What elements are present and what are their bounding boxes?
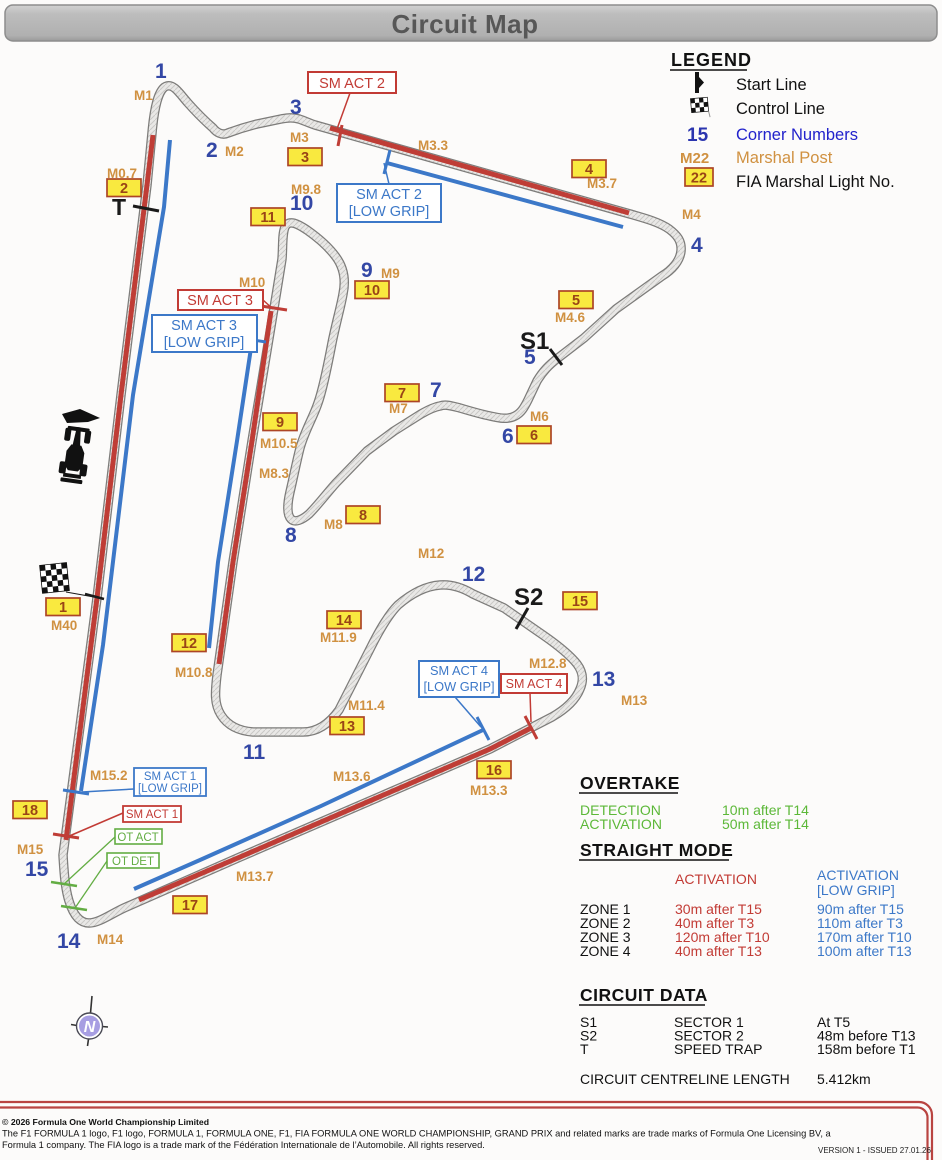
svg-text:2: 2 (206, 139, 218, 162)
svg-text:12: 12 (462, 563, 485, 586)
svg-text:7: 7 (430, 379, 442, 402)
svg-text:6: 6 (530, 428, 538, 444)
svg-text:M10: M10 (239, 275, 265, 290)
svg-text:14: 14 (57, 930, 81, 953)
svg-text:M13.7: M13.7 (236, 869, 274, 884)
svg-text:© 2026 Formula One World Champ: © 2026 Formula One World Championship Li… (2, 1117, 209, 1127)
svg-text:ACTIVATION: ACTIVATION (817, 867, 899, 883)
svg-text:VERSION 1 - ISSUED 27.01.26: VERSION 1 - ISSUED 27.01.26 (818, 1146, 931, 1155)
svg-text:M10.8: M10.8 (175, 665, 213, 680)
svg-text:STRAIGHT MODE: STRAIGHT MODE (580, 840, 733, 860)
svg-text:Control Line: Control Line (736, 100, 825, 118)
svg-text:M6: M6 (530, 409, 549, 424)
svg-text:16: 16 (486, 763, 502, 779)
svg-text:5.412km: 5.412km (817, 1071, 871, 1087)
svg-text:ZONE 4: ZONE 4 (580, 943, 631, 959)
svg-text:22: 22 (691, 171, 707, 187)
svg-text:M14: M14 (97, 932, 124, 947)
svg-text:14: 14 (336, 613, 352, 629)
svg-text:M2: M2 (225, 144, 244, 159)
svg-text:Start Line: Start Line (736, 76, 807, 94)
svg-text:[LOW GRIP]: [LOW GRIP] (138, 783, 202, 795)
svg-text:50m after T14: 50m after T14 (722, 816, 809, 832)
svg-text:M10.5: M10.5 (260, 436, 298, 451)
svg-text:M22: M22 (680, 150, 709, 167)
svg-text:S2: S2 (514, 584, 543, 611)
svg-text:Marshal Post: Marshal Post (736, 149, 833, 167)
svg-text:ACTIVATION: ACTIVATION (675, 871, 757, 887)
svg-text:M4.6: M4.6 (555, 310, 586, 325)
svg-text:SM ACT 4: SM ACT 4 (430, 663, 488, 678)
svg-text:M9: M9 (381, 266, 400, 281)
svg-text:[LOW GRIP]: [LOW GRIP] (164, 335, 245, 351)
svg-text:13: 13 (339, 719, 355, 735)
svg-text:5: 5 (524, 346, 536, 369)
svg-text:12: 12 (181, 636, 197, 652)
svg-text:15: 15 (572, 594, 588, 610)
svg-text:M15: M15 (17, 842, 44, 857)
svg-text:SM ACT 4: SM ACT 4 (506, 677, 563, 691)
svg-text:M11.9: M11.9 (320, 630, 357, 645)
svg-text:ACTIVATION: ACTIVATION (580, 816, 662, 832)
svg-text:8: 8 (285, 524, 297, 547)
svg-text:15: 15 (687, 125, 709, 146)
svg-text:M13.3: M13.3 (470, 783, 508, 798)
svg-text:T: T (112, 194, 126, 220)
svg-text:9: 9 (276, 415, 284, 431)
svg-text:OT DET: OT DET (112, 856, 154, 868)
svg-text:M3: M3 (290, 130, 309, 145)
svg-text:3: 3 (301, 150, 309, 166)
svg-text:M7: M7 (389, 401, 408, 416)
svg-text:1: 1 (155, 60, 167, 83)
svg-text:SM ACT 1: SM ACT 1 (144, 771, 196, 783)
svg-text:7: 7 (398, 386, 406, 402)
svg-text:FIA Marshal Light No.: FIA Marshal Light No. (736, 173, 895, 191)
svg-text:M40: M40 (51, 618, 77, 633)
svg-text:SPEED TRAP: SPEED TRAP (674, 1041, 762, 1057)
svg-text:4: 4 (691, 234, 703, 257)
svg-text:18: 18 (22, 803, 38, 819)
svg-text:100m after T13: 100m after T13 (817, 943, 912, 959)
svg-text:M8: M8 (324, 517, 343, 532)
svg-text:CIRCUIT DATA: CIRCUIT DATA (580, 985, 708, 1005)
svg-text:15: 15 (25, 858, 49, 881)
svg-text:M8.3: M8.3 (259, 466, 290, 481)
svg-text:M12.8: M12.8 (529, 656, 567, 671)
svg-text:4: 4 (585, 162, 593, 178)
svg-text:[LOW GRIP]: [LOW GRIP] (349, 204, 430, 220)
svg-text:6: 6 (502, 425, 514, 448)
svg-text:158m before T1: 158m before T1 (817, 1041, 916, 1057)
svg-text:10: 10 (364, 283, 380, 299)
svg-text:OVERTAKE: OVERTAKE (580, 773, 680, 793)
svg-text:M12: M12 (418, 546, 444, 561)
svg-text:8: 8 (359, 508, 367, 524)
svg-text:2: 2 (120, 181, 128, 197)
svg-text:[LOW GRIP]: [LOW GRIP] (817, 882, 895, 898)
svg-text:Formula 1 company. The FIA log: Formula 1 company. The FIA logo is a tra… (2, 1140, 485, 1150)
svg-text:M1: M1 (134, 88, 153, 103)
svg-text:SM ACT 2: SM ACT 2 (319, 76, 385, 92)
svg-text:17: 17 (182, 898, 198, 914)
svg-text:The F1 FORMULA 1 logo, F1 logo: The F1 FORMULA 1 logo, F1 logo, FORMULA … (2, 1129, 832, 1139)
svg-text:T: T (580, 1041, 589, 1057)
svg-text:40m after T13: 40m after T13 (675, 943, 762, 959)
svg-text:Circuit Map: Circuit Map (391, 9, 538, 39)
svg-text:M13.6: M13.6 (333, 769, 371, 784)
svg-text:M15.2: M15.2 (90, 768, 128, 783)
svg-text:9: 9 (361, 259, 373, 282)
svg-text:M3.3: M3.3 (418, 138, 449, 153)
svg-text:OT ACT: OT ACT (117, 832, 158, 844)
svg-text:SM ACT 1: SM ACT 1 (126, 809, 178, 821)
svg-text:CIRCUIT CENTRELINE LENGTH: CIRCUIT CENTRELINE LENGTH (580, 1071, 790, 1087)
svg-text:SM ACT 3: SM ACT 3 (187, 293, 253, 309)
svg-text:M11.4: M11.4 (348, 698, 385, 713)
svg-text:M13: M13 (621, 693, 648, 708)
svg-text:Corner Numbers: Corner Numbers (736, 126, 858, 144)
svg-text:11: 11 (260, 210, 275, 226)
svg-text:SM ACT 3: SM ACT 3 (171, 318, 237, 334)
svg-text:[LOW GRIP]: [LOW GRIP] (423, 679, 494, 694)
svg-text:LEGEND: LEGEND (671, 50, 752, 70)
svg-text:3: 3 (290, 96, 302, 119)
svg-text:SM ACT 2: SM ACT 2 (356, 187, 422, 203)
svg-text:5: 5 (572, 293, 580, 309)
svg-text:11: 11 (243, 741, 266, 764)
svg-text:M9.8: M9.8 (291, 182, 322, 197)
svg-text:N: N (84, 1019, 96, 1036)
svg-text:1: 1 (59, 600, 67, 616)
svg-text:13: 13 (592, 668, 615, 691)
svg-text:M4: M4 (682, 207, 701, 222)
